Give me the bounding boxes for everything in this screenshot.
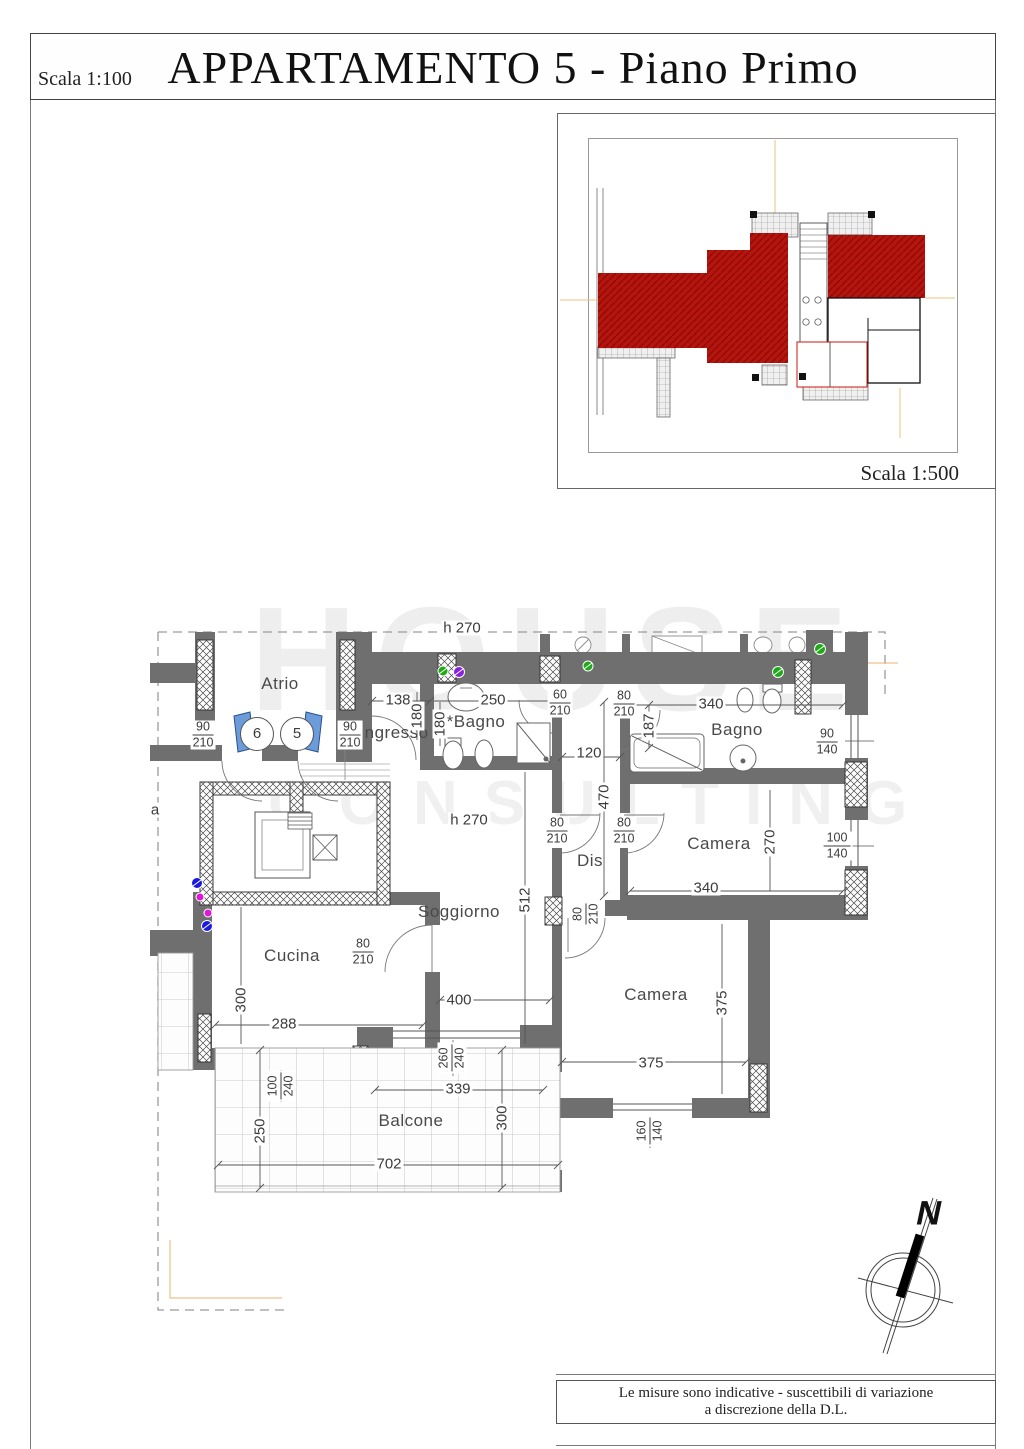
drawing-sheet: Scala 1:100 APPARTAMENTO 5 - Piano Primo… [0,0,1024,1449]
dimension-label: 375 [636,1056,665,1071]
plan-labels: AtrioIngresso*BagnoBagnoCameraDisSoggior… [0,0,1024,1449]
dimension-fraction-label: 160140 [636,1116,665,1147]
dimension-fraction-label: 90140 [815,728,840,757]
dimension-label: 250 [478,693,507,708]
dimension-label: h 270 [448,813,490,828]
dimension-fraction-label: 90210 [191,721,216,750]
footer-note-line2: a discrezione della D.L. [557,1402,995,1419]
dimension-fraction-label: 260240 [438,1043,467,1074]
dimension-label: 180 [433,709,448,738]
room-label: Dis [577,851,603,871]
apartment-door-number: 5 [280,717,314,751]
dimension-label: 470 [597,782,612,811]
footer-note-line1: Le misure sono indicative - suscettibili… [557,1385,995,1402]
dimension-label: 702 [374,1157,403,1172]
dimension-label: 512 [518,885,533,914]
dimension-fraction-label: 80210 [612,817,637,846]
room-label: Balcone [379,1111,444,1131]
dimension-fraction-label: 80210 [351,938,376,967]
dimension-label: 300 [495,1103,510,1132]
room-label: Atrio [261,674,298,694]
dimension-fraction-label: 80210 [572,902,601,927]
room-label: Camera [624,985,687,1005]
dimension-fraction-label: 80210 [545,817,570,846]
dimension-label: 339 [443,1082,472,1097]
dimension-label: 400 [444,993,473,1008]
room-label: Camera [687,834,750,854]
dimension-label: 120 [574,746,603,761]
room-label: *Bagno [447,712,506,732]
dimension-fraction-label: 100240 [267,1071,296,1102]
dimension-fraction-label: 80210 [612,690,637,719]
dimension-label: 250 [253,1116,268,1145]
footer-note-box: Le misure sono indicative - suscettibili… [556,1380,996,1424]
dimension-label: 300 [234,985,249,1014]
dimension-fraction-label: 90210 [338,721,363,750]
dimension-label: 375 [715,988,730,1017]
dimension-fraction-label: 60210 [548,689,573,718]
dimension-label: a [149,803,161,818]
room-label: Soggiorno [418,902,500,922]
dimension-label: 340 [696,697,725,712]
dimension-label: 187 [642,711,657,740]
room-label: Bagno [711,720,763,740]
apartment-door-number: 6 [240,717,274,751]
room-label: Cucina [264,946,320,966]
dimension-label: 340 [691,881,720,896]
dimension-label: h 270 [441,621,483,636]
dimension-label: 288 [269,1017,298,1032]
dimension-fraction-label: 100140 [822,832,853,861]
dimension-label: 180 [410,701,425,730]
dimension-label: 270 [763,827,778,856]
